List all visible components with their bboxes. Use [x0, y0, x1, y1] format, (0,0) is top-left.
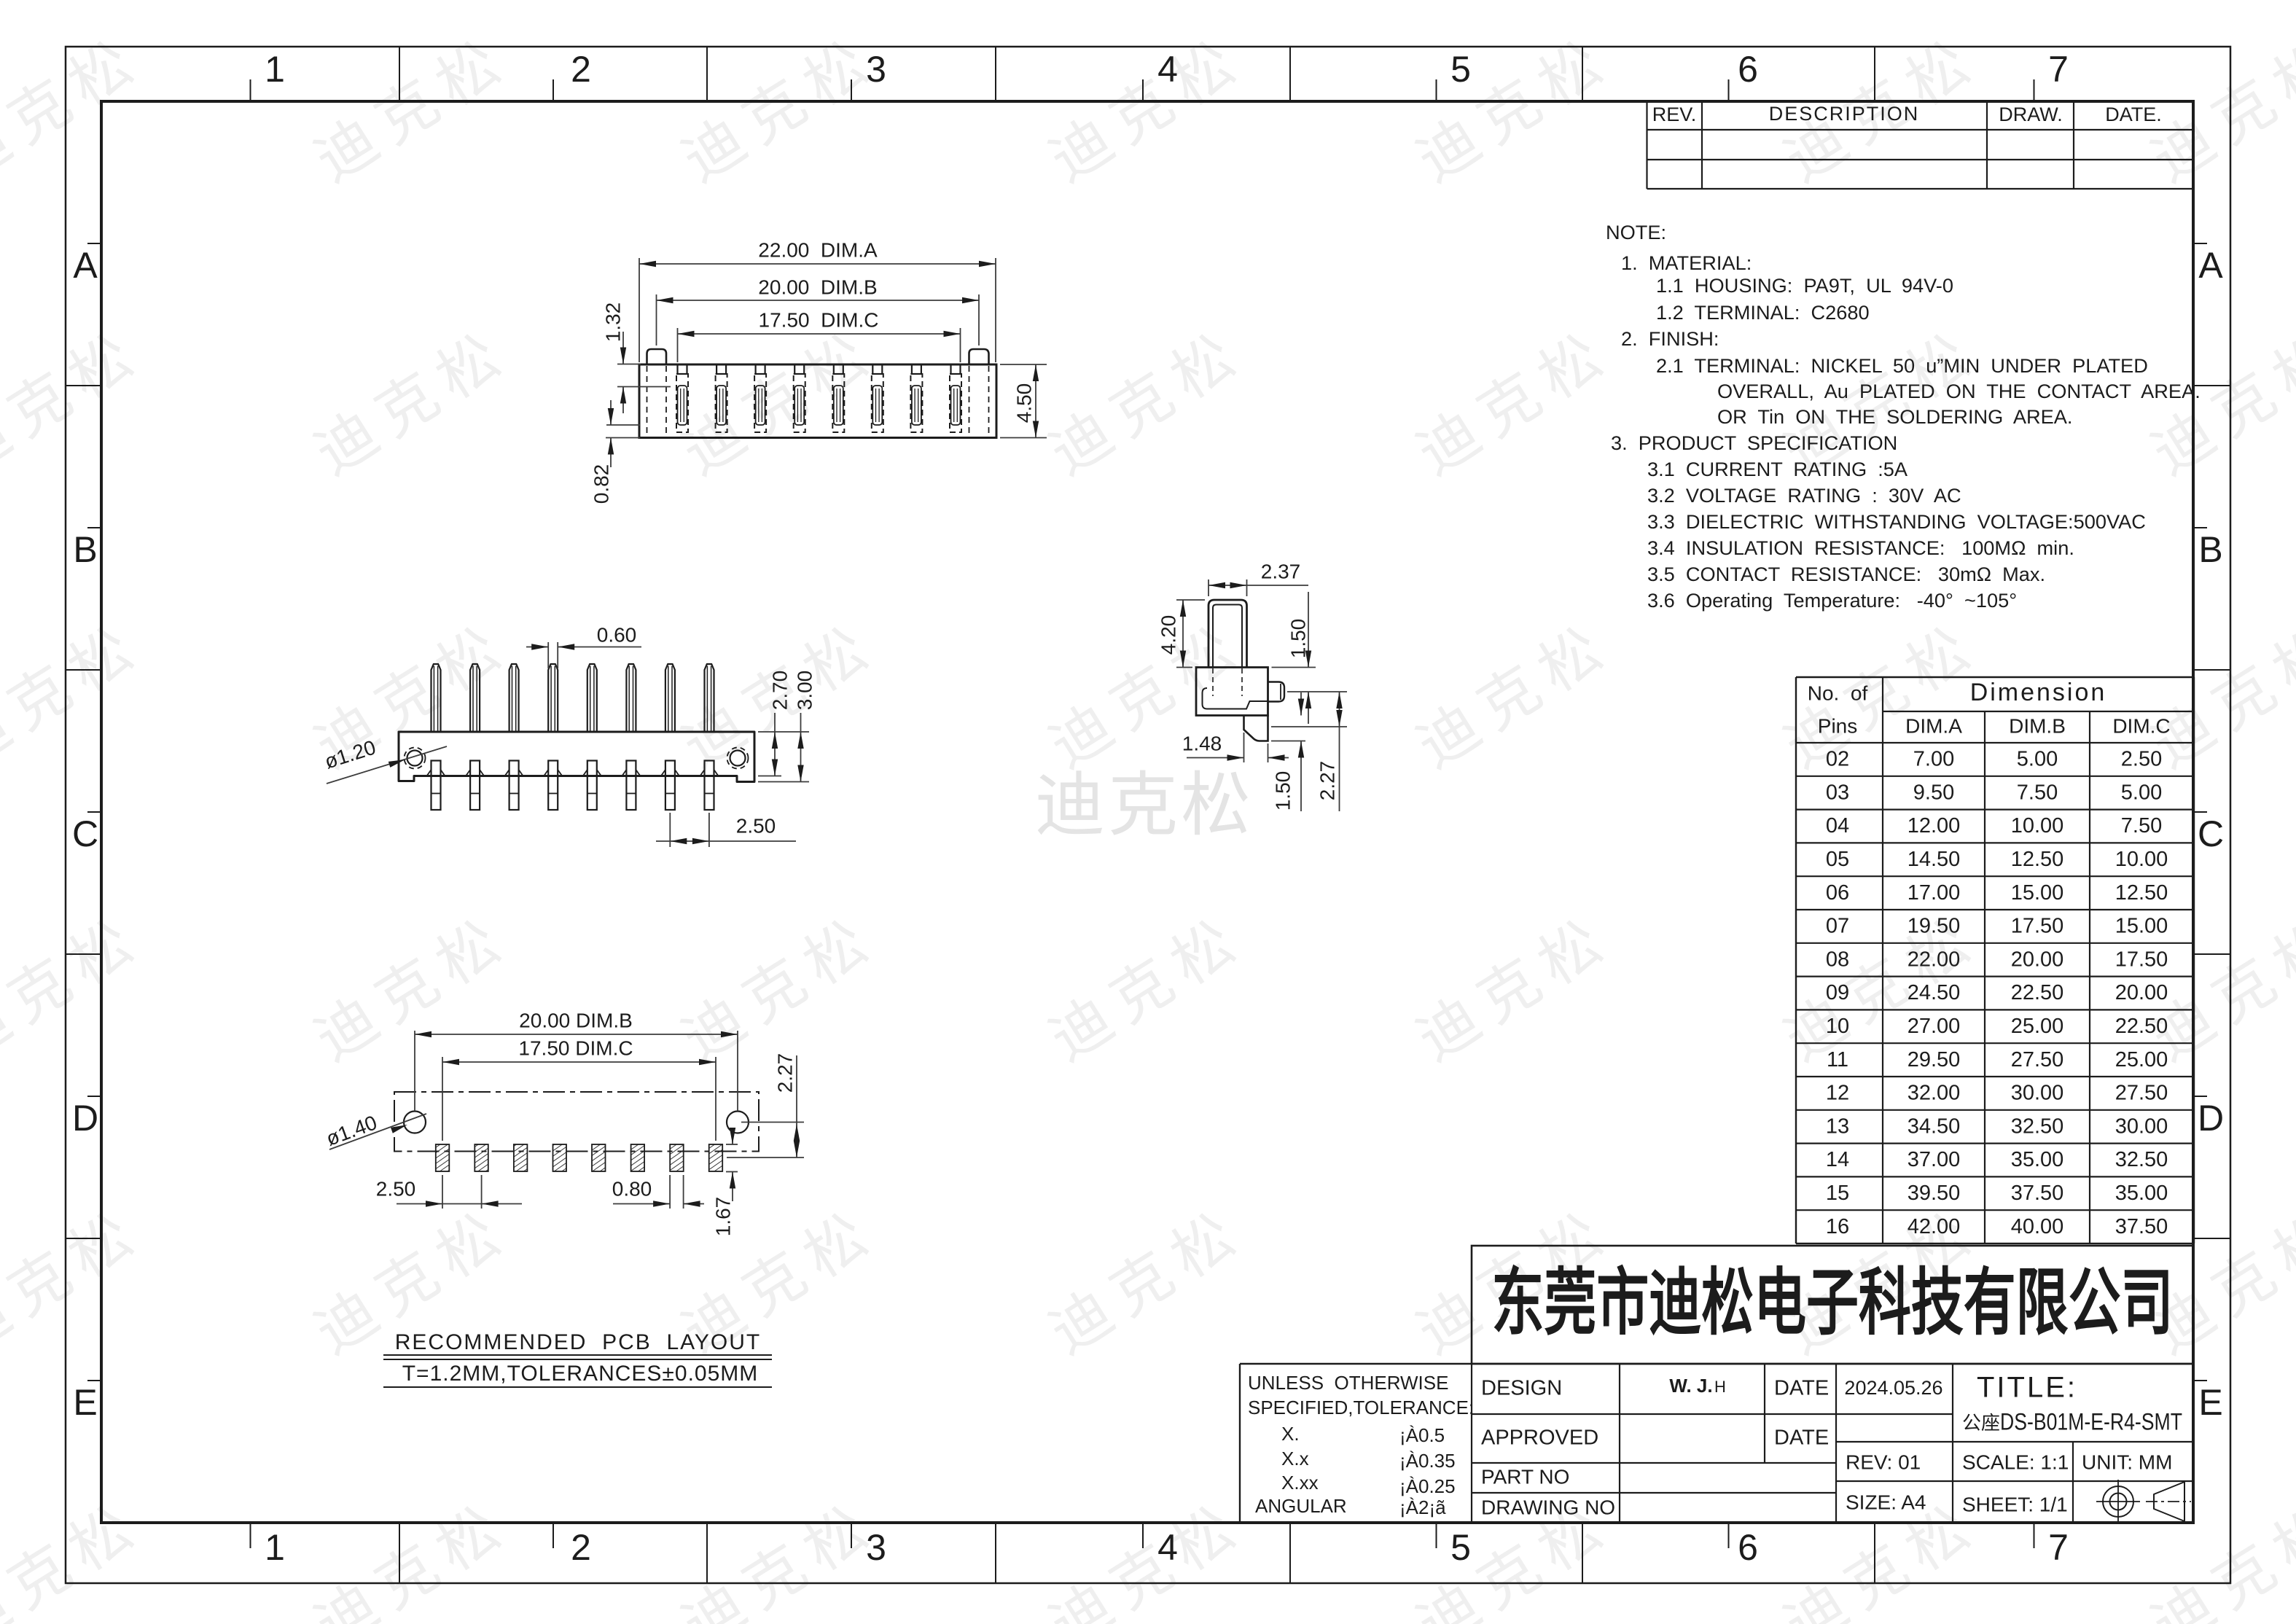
- svg-text:SCALE: 1:1: SCALE: 1:1: [1962, 1451, 2069, 1473]
- svg-text:Pins: Pins: [1818, 714, 1857, 737]
- svg-text:UNLESS OTHERWISE: UNLESS OTHERWISE: [1248, 1372, 1448, 1394]
- svg-text:20.00 DIM.B: 20.00 DIM.B: [519, 1009, 633, 1031]
- svg-text:10.00: 10.00: [2011, 814, 2064, 838]
- svg-text:东莞市迪松电子科技有限公司: 东莞市迪松电子科技有限公司: [1492, 1262, 2174, 1343]
- svg-text:¡À0.25: ¡À0.25: [1399, 1475, 1456, 1497]
- svg-text:7.50: 7.50: [2017, 781, 2058, 804]
- svg-text:14: 14: [1826, 1148, 1849, 1171]
- svg-text:¡À0.35: ¡À0.35: [1399, 1450, 1456, 1472]
- svg-text:2.37: 2.37: [1261, 560, 1301, 582]
- svg-text:3.6 Operating Temperature:: 3.6 Operating Temperature: -40° ~105°: [1647, 589, 2017, 612]
- svg-text:22.00: 22.00: [1908, 948, 1961, 971]
- svg-text:3.4 INSULATION RESISTANCE:: 3.4 INSULATION RESISTANCE: 100MΩ min.: [1647, 536, 2074, 559]
- svg-text:10.00: 10.00: [2115, 848, 2168, 871]
- svg-text:A: A: [73, 245, 98, 286]
- svg-text:32.50: 32.50: [2115, 1148, 2168, 1171]
- svg-text:15: 15: [1826, 1182, 1849, 1205]
- svg-text:15.00: 15.00: [2011, 881, 2064, 905]
- svg-text:02: 02: [1826, 748, 1849, 771]
- svg-text:29.50: 29.50: [1908, 1048, 1961, 1071]
- svg-text:14.50: 14.50: [1908, 848, 1961, 871]
- svg-text:2.27: 2.27: [773, 1053, 796, 1093]
- svg-text:4: 4: [1157, 1527, 1178, 1568]
- svg-text:2. FINISH:: 2. FINISH:: [1621, 327, 1719, 350]
- svg-text:5: 5: [1450, 1527, 1471, 1568]
- svg-text:H: H: [1714, 1378, 1726, 1396]
- svg-text:22.50: 22.50: [2011, 981, 2064, 1004]
- svg-text:3. PRODUCT SPECIFICATION: 3. PRODUCT SPECIFICATION: [1611, 432, 1897, 454]
- svg-text:20.00 DIM.B: 20.00 DIM.B: [758, 276, 877, 298]
- svg-text:39.50: 39.50: [1908, 1182, 1961, 1205]
- svg-text:6: 6: [1738, 49, 1758, 90]
- svg-text:20.00: 20.00: [2011, 948, 2064, 971]
- svg-text:RECOMMENDED PCB LAYOUT: RECOMMENDED PCB LAYOUT: [395, 1330, 762, 1354]
- svg-text:C: C: [72, 813, 98, 854]
- svg-text:PART NO: PART NO: [1481, 1465, 1569, 1488]
- svg-text:25.00: 25.00: [2011, 1015, 2064, 1038]
- svg-text:X.: X.: [1281, 1423, 1300, 1445]
- svg-text:ANGULAR: ANGULAR: [1255, 1495, 1347, 1517]
- svg-text:5: 5: [1450, 49, 1471, 90]
- svg-text:Dimension: Dimension: [1970, 679, 2107, 706]
- svg-text:3: 3: [866, 49, 886, 90]
- svg-text:27.00: 27.00: [1908, 1015, 1961, 1038]
- svg-text:27.50: 27.50: [2115, 1082, 2168, 1105]
- svg-text:No. of: No. of: [1808, 682, 1868, 704]
- svg-text:17.50 DIM.C: 17.50 DIM.C: [759, 308, 879, 331]
- svg-text:2: 2: [571, 1527, 591, 1568]
- svg-text:APPROVED: APPROVED: [1481, 1426, 1598, 1450]
- svg-text:DS-B01M-E-R4-SMT: DS-B01M-E-R4-SMT: [2000, 1408, 2182, 1434]
- svg-text:12.50: 12.50: [2011, 848, 2064, 871]
- svg-text:17.50 DIM.C: 17.50 DIM.C: [518, 1037, 633, 1059]
- svg-text:4.20: 4.20: [1157, 615, 1179, 655]
- svg-text:W. J.: W. J.: [1669, 1375, 1712, 1397]
- svg-text:DATE: DATE: [1774, 1377, 1829, 1400]
- svg-text:32.00: 32.00: [1908, 1082, 1961, 1105]
- svg-text:40.00: 40.00: [2011, 1215, 2064, 1238]
- svg-text:REV.: REV.: [1652, 104, 1697, 125]
- svg-text:2024.05.26: 2024.05.26: [1844, 1377, 1942, 1399]
- svg-text:E: E: [73, 1382, 97, 1423]
- svg-text:5.00: 5.00: [2017, 748, 2058, 771]
- svg-text:7.50: 7.50: [2121, 814, 2162, 838]
- svg-text:34.50: 34.50: [1908, 1114, 1961, 1138]
- svg-text:SIZE: A4: SIZE: A4: [1846, 1491, 1926, 1513]
- svg-text:10: 10: [1826, 1015, 1849, 1038]
- svg-text:DRAWING NO: DRAWING NO: [1481, 1496, 1615, 1518]
- svg-text:3.1 CURRENT RATING :5A: 3.1 CURRENT RATING :5A: [1647, 458, 1908, 480]
- svg-text:12.50: 12.50: [2115, 881, 2168, 905]
- svg-text:6: 6: [1738, 1527, 1758, 1568]
- svg-text:公座: 公座: [1962, 1412, 2000, 1434]
- svg-text:03: 03: [1826, 781, 1849, 804]
- svg-text:08: 08: [1826, 948, 1849, 971]
- svg-text:3.2 VOLTAGE RATING : 30V: 3.2 VOLTAGE RATING : 30V AC: [1647, 484, 1961, 507]
- svg-text:2.50: 2.50: [736, 814, 776, 837]
- svg-text:¡À0.5: ¡À0.5: [1399, 1424, 1445, 1446]
- svg-text:1: 1: [265, 49, 285, 90]
- svg-text:12.00: 12.00: [1908, 814, 1961, 838]
- svg-text:B: B: [73, 529, 97, 570]
- svg-text:37.50: 37.50: [2115, 1215, 2168, 1238]
- svg-text:2.27: 2.27: [1316, 761, 1338, 801]
- svg-text:D: D: [72, 1098, 98, 1139]
- svg-text:NOTE:: NOTE:: [1606, 221, 1666, 243]
- svg-text:1. MATERIAL:: 1. MATERIAL:: [1621, 251, 1752, 274]
- svg-text:11: 11: [1827, 1048, 1848, 1071]
- svg-text:DIM.A: DIM.A: [1905, 714, 1962, 737]
- svg-text:24.50: 24.50: [1908, 981, 1961, 1004]
- svg-text:DRAW.: DRAW.: [1999, 104, 2063, 125]
- svg-text:OR Tin ON THE SOLDERING A: OR Tin ON THE SOLDERING AREA.: [1717, 405, 2072, 428]
- svg-text:37.50: 37.50: [2011, 1182, 2064, 1205]
- svg-text:1.32: 1.32: [601, 302, 624, 343]
- svg-text:30.00: 30.00: [2115, 1114, 2168, 1138]
- svg-text:1.2 TERMINAL: C2680: 1.2 TERMINAL: C2680: [1656, 301, 1870, 324]
- svg-text:UNIT: MM: UNIT: MM: [2082, 1451, 2172, 1473]
- svg-text:9.50: 9.50: [1913, 781, 1954, 804]
- svg-text:0.82: 0.82: [590, 464, 612, 504]
- svg-text:DATE.: DATE.: [2105, 104, 2162, 125]
- svg-text:0.80: 0.80: [612, 1177, 652, 1200]
- svg-text:SHEET: 1/1: SHEET: 1/1: [1962, 1493, 2068, 1515]
- svg-text:T=1.2MM,TOLERANCES±0.05MM: T=1.2MM,TOLERANCES±0.05MM: [402, 1362, 759, 1386]
- svg-text:2: 2: [571, 49, 591, 90]
- svg-text:42.00: 42.00: [1908, 1215, 1961, 1238]
- svg-text:7.00: 7.00: [1913, 748, 1954, 771]
- svg-text:1.1 HOUSING: PA9T, UL 94V-: 1.1 HOUSING: PA9T, UL 94V-0: [1656, 274, 1953, 297]
- svg-text:27.50: 27.50: [2011, 1048, 2064, 1071]
- svg-text:17.50: 17.50: [2011, 915, 2064, 938]
- svg-text:17.00: 17.00: [1908, 881, 1961, 905]
- svg-text:2.50: 2.50: [376, 1177, 416, 1200]
- svg-text:TITLE:: TITLE:: [1977, 1372, 2077, 1404]
- svg-text:1.67: 1.67: [711, 1197, 734, 1237]
- svg-text:2.1 TERMINAL: NICKEL 50 u”: 2.1 TERMINAL: NICKEL 50 u”MIN UNDER PLAT…: [1656, 354, 2148, 377]
- svg-text:19.50: 19.50: [1908, 915, 1961, 938]
- svg-text:15.00: 15.00: [2115, 915, 2168, 938]
- svg-text:32.50: 32.50: [2011, 1114, 2064, 1138]
- svg-text:X.xx: X.xx: [1281, 1472, 1319, 1494]
- svg-text:25.00: 25.00: [2115, 1048, 2168, 1071]
- svg-text:22.00 DIM.A: 22.00 DIM.A: [758, 238, 878, 261]
- svg-text:DESCRIPTION: DESCRIPTION: [1769, 103, 1920, 125]
- svg-text:09: 09: [1826, 981, 1849, 1004]
- svg-text:DIM.C: DIM.C: [2112, 714, 2170, 737]
- svg-text:A: A: [2198, 245, 2223, 286]
- svg-text:37.00: 37.00: [1908, 1148, 1961, 1171]
- svg-text:SPECIFIED,TOLERANCE:: SPECIFIED,TOLERANCE:: [1248, 1397, 1474, 1418]
- svg-text:05: 05: [1826, 848, 1849, 871]
- svg-text:22.50: 22.50: [2115, 1015, 2168, 1038]
- svg-text:1: 1: [265, 1527, 285, 1568]
- svg-text:4.50: 4.50: [1012, 383, 1035, 423]
- svg-text:DATE: DATE: [1774, 1426, 1829, 1450]
- svg-text:20.00: 20.00: [2115, 981, 2168, 1004]
- svg-text:16: 16: [1826, 1215, 1849, 1238]
- svg-text:30.00: 30.00: [2011, 1082, 2064, 1105]
- svg-text:2.70: 2.70: [768, 671, 791, 711]
- svg-text:¡À2¡ã: ¡À2¡ã: [1399, 1496, 1446, 1518]
- svg-text:3.3 DIELECTRIC WITHSTANDING: 3.3 DIELECTRIC WITHSTANDING VOLTAGE:500V…: [1647, 510, 2146, 533]
- svg-text:C: C: [2198, 813, 2224, 854]
- svg-text:DIM.B: DIM.B: [2009, 714, 2066, 737]
- svg-text:3: 3: [866, 1527, 886, 1568]
- svg-text:3.00: 3.00: [793, 671, 816, 711]
- svg-text:13: 13: [1826, 1114, 1849, 1138]
- svg-text:迪克松: 迪克松: [1035, 766, 1254, 844]
- svg-text:4: 4: [1157, 49, 1178, 90]
- svg-text:06: 06: [1826, 881, 1849, 905]
- svg-text:E: E: [2198, 1382, 2222, 1423]
- svg-text:17.50: 17.50: [2115, 948, 2168, 971]
- svg-text:12: 12: [1826, 1082, 1849, 1105]
- svg-text:3.5 CONTACT RESISTANCE: 30: 3.5 CONTACT RESISTANCE: 30mΩ Max.: [1647, 563, 2045, 585]
- svg-text:5.00: 5.00: [2121, 781, 2162, 804]
- svg-text:1.50: 1.50: [1271, 771, 1294, 811]
- svg-text:7: 7: [2048, 49, 2069, 90]
- svg-text:X.x: X.x: [1281, 1448, 1309, 1469]
- svg-text:B: B: [2198, 529, 2222, 570]
- svg-text:35.00: 35.00: [2115, 1182, 2168, 1205]
- svg-text:DESIGN: DESIGN: [1481, 1377, 1562, 1400]
- svg-text:35.00: 35.00: [2011, 1148, 2064, 1171]
- svg-text:2.50: 2.50: [2121, 748, 2162, 771]
- svg-text:07: 07: [1826, 915, 1849, 938]
- svg-text:1.48: 1.48: [1182, 732, 1222, 754]
- svg-text:D: D: [2198, 1098, 2224, 1139]
- svg-text:0.60: 0.60: [597, 623, 637, 646]
- svg-text:OVERALL, Au PLATED ON THE: OVERALL, Au PLATED ON THE CONTACT AREA.: [1717, 380, 2201, 402]
- svg-text:04: 04: [1826, 814, 1849, 838]
- svg-text:1.50: 1.50: [1286, 619, 1309, 659]
- svg-text:7: 7: [2048, 1527, 2069, 1568]
- svg-text:REV: 01: REV: 01: [1846, 1451, 1921, 1473]
